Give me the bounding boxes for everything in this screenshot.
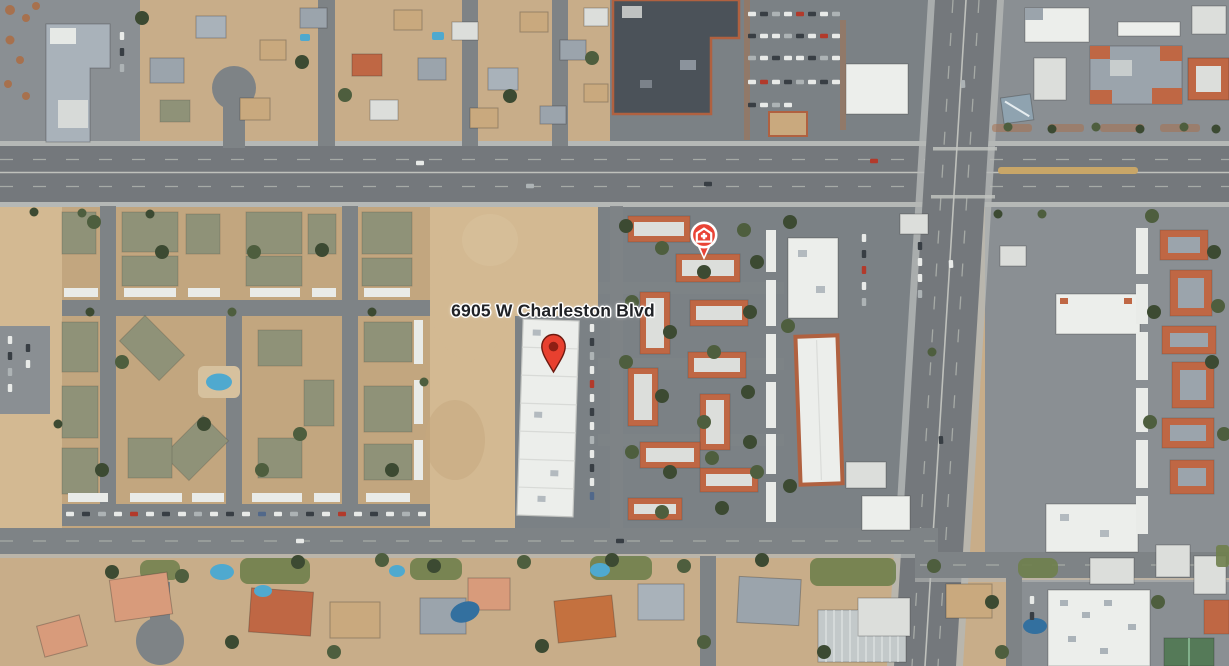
satellite-map-viewport[interactable]: 6905 W Charleston Blvd <box>0 0 1229 666</box>
medical-poi-marker[interactable] <box>688 217 720 261</box>
destination-pin-icon <box>541 335 564 373</box>
satellite-imagery[interactable] <box>0 0 1229 666</box>
address-label: 6905 W Charleston Blvd <box>451 301 655 322</box>
destination-pin[interactable] <box>540 333 567 374</box>
medical-poi-pin-icon <box>692 223 716 260</box>
